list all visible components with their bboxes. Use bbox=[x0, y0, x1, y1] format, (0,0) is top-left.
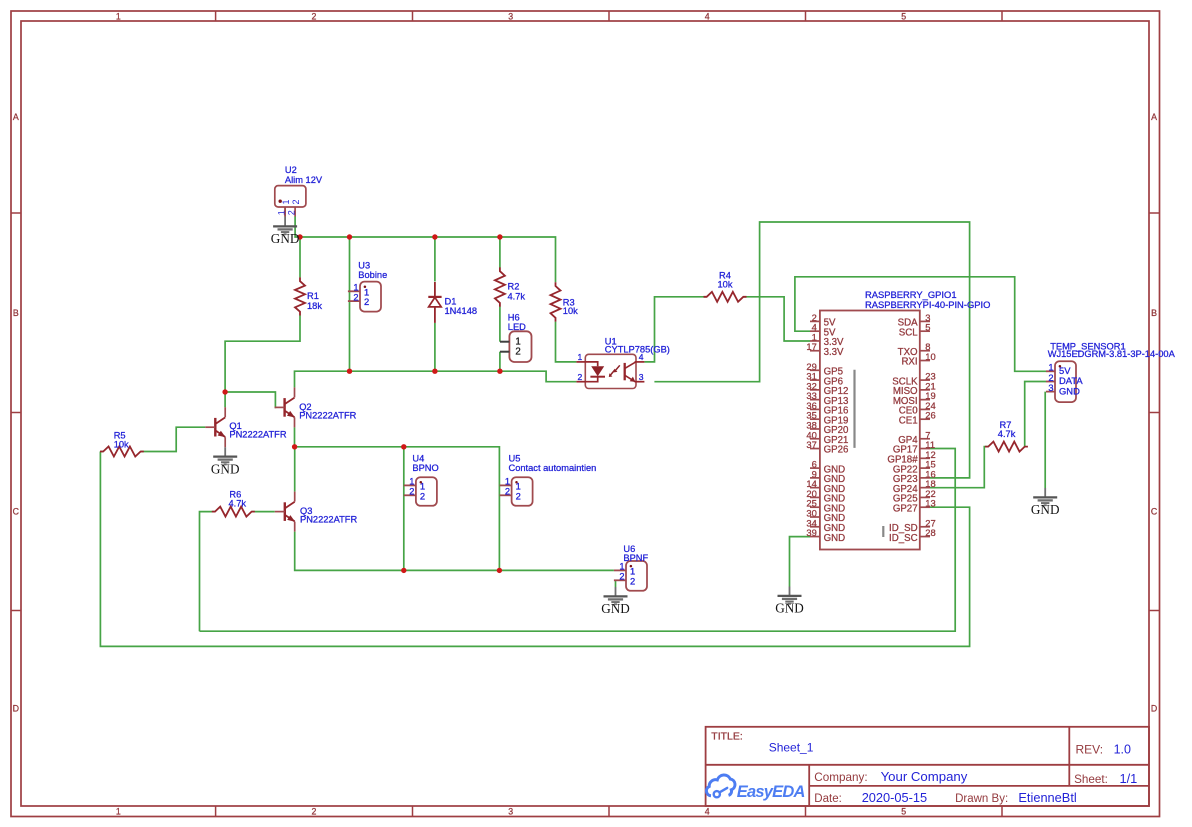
svg-text:GND: GND bbox=[824, 533, 846, 544]
svg-text:1: 1 bbox=[281, 199, 291, 204]
svg-text:17: 17 bbox=[806, 341, 816, 352]
svg-text:5: 5 bbox=[901, 806, 906, 816]
svg-text:2: 2 bbox=[516, 490, 521, 501]
svg-text:GND: GND bbox=[271, 231, 300, 246]
svg-text:C: C bbox=[13, 507, 20, 517]
svg-text:18k: 18k bbox=[307, 301, 322, 311]
svg-text:A: A bbox=[13, 112, 19, 122]
svg-text:1.0: 1.0 bbox=[1114, 742, 1131, 756]
svg-text:GND: GND bbox=[1031, 502, 1060, 517]
svg-text:26: 26 bbox=[925, 410, 935, 421]
svg-text:A: A bbox=[1151, 112, 1157, 122]
svg-text:PN2222ATFR: PN2222ATFR bbox=[300, 514, 357, 524]
svg-text:BPNF: BPNF bbox=[623, 553, 648, 563]
svg-text:GP27: GP27 bbox=[893, 503, 918, 514]
svg-text:2: 2 bbox=[420, 490, 425, 501]
svg-text:3: 3 bbox=[508, 806, 513, 816]
svg-text:4: 4 bbox=[705, 806, 710, 816]
svg-text:4: 4 bbox=[705, 11, 710, 21]
svg-text:GND: GND bbox=[775, 601, 804, 616]
svg-text:EasyEDA: EasyEDA bbox=[737, 783, 805, 801]
svg-text:EtienneBtl: EtienneBtl bbox=[1018, 790, 1076, 805]
svg-text:H6: H6 bbox=[508, 313, 520, 323]
svg-text:U3: U3 bbox=[358, 260, 370, 270]
svg-text:5: 5 bbox=[925, 322, 930, 333]
svg-text:D: D bbox=[13, 704, 19, 714]
svg-text:Alim 12V: Alim 12V bbox=[285, 175, 323, 185]
svg-text:37: 37 bbox=[806, 439, 816, 450]
svg-text:3.3V: 3.3V bbox=[824, 347, 844, 358]
svg-text:PN2222ATFR: PN2222ATFR bbox=[229, 429, 286, 439]
svg-text:RASPBERRYPI-40-PIN-GPIO: RASPBERRYPI-40-PIN-GPIO bbox=[865, 299, 990, 310]
svg-text:WJ15EDGRM-3.81-3P-14-00A: WJ15EDGRM-3.81-3P-14-00A bbox=[1048, 349, 1176, 359]
svg-text:2020-05-15: 2020-05-15 bbox=[862, 790, 927, 805]
svg-text:RXI: RXI bbox=[901, 357, 917, 368]
svg-text:2: 2 bbox=[505, 487, 510, 497]
svg-text:PN2222ATFR: PN2222ATFR bbox=[299, 410, 356, 420]
svg-text:U4: U4 bbox=[412, 453, 424, 463]
svg-text:R2: R2 bbox=[508, 282, 520, 292]
svg-text:Your Company: Your Company bbox=[881, 769, 968, 784]
svg-text:2: 2 bbox=[286, 210, 296, 215]
svg-text:GND: GND bbox=[1059, 385, 1080, 396]
svg-text:2: 2 bbox=[1048, 373, 1053, 383]
svg-text:1: 1 bbox=[505, 477, 510, 487]
svg-text:1/1: 1/1 bbox=[1120, 771, 1138, 786]
svg-text:2: 2 bbox=[353, 292, 358, 302]
svg-text:Company:: Company: bbox=[814, 771, 867, 784]
svg-text:Drawn By:: Drawn By: bbox=[955, 793, 1008, 805]
svg-text:3: 3 bbox=[639, 372, 644, 382]
svg-text:Contact automaintien: Contact automaintien bbox=[509, 463, 597, 473]
svg-text:10k: 10k bbox=[718, 280, 733, 290]
svg-text:ID_SC: ID_SC bbox=[889, 533, 918, 544]
svg-text:R1: R1 bbox=[307, 291, 319, 301]
svg-text:1: 1 bbox=[578, 352, 583, 362]
svg-text:2: 2 bbox=[409, 487, 414, 497]
svg-text:1N4148: 1N4148 bbox=[445, 306, 478, 316]
svg-text:10k: 10k bbox=[114, 440, 129, 450]
svg-text:1: 1 bbox=[116, 806, 121, 816]
svg-text:Date:: Date: bbox=[814, 793, 842, 805]
svg-text:2: 2 bbox=[364, 296, 369, 307]
svg-text:Bobine: Bobine bbox=[358, 270, 387, 280]
svg-text:2: 2 bbox=[312, 11, 317, 21]
svg-text:1: 1 bbox=[353, 283, 358, 293]
svg-text:4.7k: 4.7k bbox=[229, 498, 247, 508]
svg-text:10k: 10k bbox=[563, 306, 578, 316]
svg-text:GND: GND bbox=[601, 601, 630, 616]
svg-text:39: 39 bbox=[806, 527, 816, 538]
svg-text:3: 3 bbox=[508, 11, 513, 21]
svg-text:2: 2 bbox=[515, 347, 520, 358]
svg-text:10: 10 bbox=[925, 351, 935, 362]
svg-text:2: 2 bbox=[630, 575, 635, 586]
svg-text:B: B bbox=[1151, 308, 1157, 318]
svg-text:GP26: GP26 bbox=[824, 445, 849, 456]
svg-text:Sheet_1: Sheet_1 bbox=[769, 740, 814, 754]
svg-text:U2: U2 bbox=[285, 165, 297, 175]
svg-text:2: 2 bbox=[291, 199, 301, 204]
svg-text:1: 1 bbox=[276, 210, 286, 215]
svg-text:4.7k: 4.7k bbox=[508, 292, 526, 302]
svg-text:CYTLP785(GB): CYTLP785(GB) bbox=[605, 345, 670, 355]
svg-text:2: 2 bbox=[578, 372, 583, 382]
svg-text:SCL: SCL bbox=[899, 327, 918, 338]
svg-text:B: B bbox=[13, 308, 19, 318]
svg-text:U5: U5 bbox=[509, 453, 521, 463]
svg-text:D1: D1 bbox=[445, 297, 457, 307]
svg-text:REV:: REV: bbox=[1076, 742, 1104, 756]
svg-text:2: 2 bbox=[619, 572, 624, 582]
svg-text:BPNO: BPNO bbox=[412, 463, 438, 473]
svg-text:LED: LED bbox=[508, 322, 526, 332]
svg-text:13: 13 bbox=[925, 498, 935, 509]
svg-text:GND: GND bbox=[211, 461, 240, 476]
svg-text:1: 1 bbox=[409, 477, 414, 487]
svg-text:Sheet:: Sheet: bbox=[1074, 773, 1108, 786]
svg-text:CE1: CE1 bbox=[899, 415, 918, 426]
svg-text:3: 3 bbox=[1048, 383, 1053, 393]
svg-text:28: 28 bbox=[925, 527, 935, 538]
svg-text:D: D bbox=[1151, 704, 1157, 714]
svg-text:5: 5 bbox=[901, 11, 906, 21]
svg-text:1: 1 bbox=[1048, 363, 1053, 373]
svg-text:2: 2 bbox=[312, 806, 317, 816]
svg-text:4.7k: 4.7k bbox=[998, 429, 1016, 439]
svg-text:1: 1 bbox=[116, 11, 121, 21]
svg-text:C: C bbox=[1151, 507, 1158, 517]
svg-text:TITLE:: TITLE: bbox=[711, 731, 743, 743]
